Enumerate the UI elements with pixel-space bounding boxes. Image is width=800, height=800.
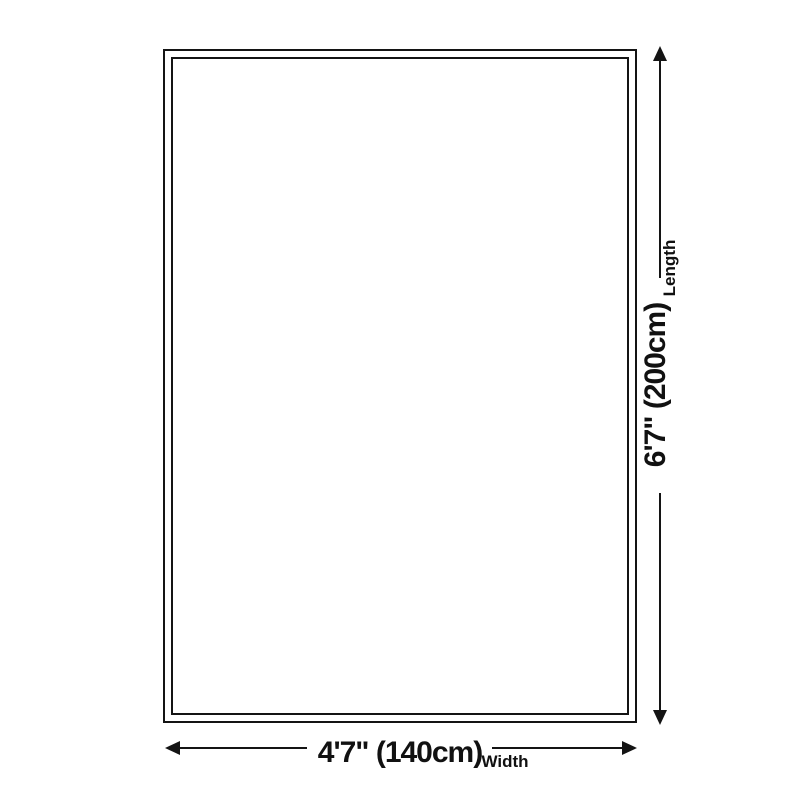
width-arrow-right-line [492, 747, 622, 749]
rug-outline [163, 49, 637, 723]
length-value: 6'7" (200cm) [639, 303, 673, 467]
arrow-down-icon [653, 710, 667, 725]
arrow-right-icon [622, 741, 637, 755]
length-arrow-lower-line [659, 493, 661, 712]
width-value: 4'7" (140cm) [318, 736, 482, 770]
width-label: Width [481, 752, 528, 772]
width-arrow-left-line [177, 747, 307, 749]
dimension-diagram: Length 6'7" (200cm) 4'7" (140cm) Width [0, 0, 800, 800]
rug-inner-border [171, 57, 629, 715]
length-label: Length [660, 240, 680, 297]
